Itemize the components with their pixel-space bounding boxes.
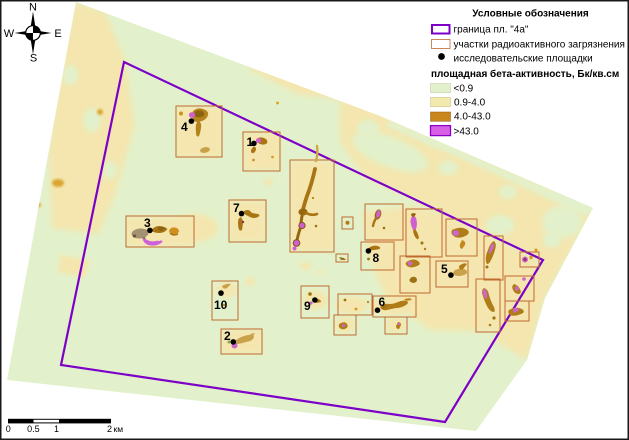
svg-text:E: E (54, 28, 61, 40)
svg-text:4: 4 (181, 120, 188, 134)
svg-text:0: 0 (6, 424, 11, 434)
svg-text:3: 3 (144, 216, 151, 230)
svg-text:W: W (4, 28, 15, 40)
svg-text:Условные обозначения: Условные обозначения (472, 8, 589, 20)
svg-text:участки радиоактивного загрязн: участки радиоактивного загрязнения (454, 40, 625, 51)
svg-text:2: 2 (224, 329, 231, 343)
svg-text:км: км (114, 424, 124, 434)
svg-text:S: S (30, 53, 37, 65)
svg-text:1: 1 (247, 135, 254, 149)
svg-text:>43.0: >43.0 (454, 127, 480, 138)
svg-text:исследовательские площадки: исследовательские площадки (454, 53, 593, 64)
svg-text:1: 1 (54, 424, 59, 434)
svg-text:5: 5 (441, 262, 448, 276)
svg-text:10: 10 (214, 298, 228, 312)
svg-text:9: 9 (304, 299, 311, 313)
svg-text:0.9-4.0: 0.9-4.0 (454, 98, 486, 109)
svg-text:6: 6 (379, 295, 386, 309)
svg-text:<0.9: <0.9 (454, 84, 474, 95)
svg-text:8: 8 (373, 251, 380, 265)
svg-text:площадная бета-активность, Бк/: площадная бета-активность, Бк/кв.см (431, 68, 619, 80)
svg-text:7: 7 (233, 201, 240, 215)
svg-text:4.0-43.0: 4.0-43.0 (454, 112, 491, 123)
svg-text:граница пл. "4а": граница пл. "4а" (454, 25, 529, 36)
svg-text:0.5: 0.5 (27, 424, 40, 434)
svg-text:2: 2 (107, 424, 112, 434)
